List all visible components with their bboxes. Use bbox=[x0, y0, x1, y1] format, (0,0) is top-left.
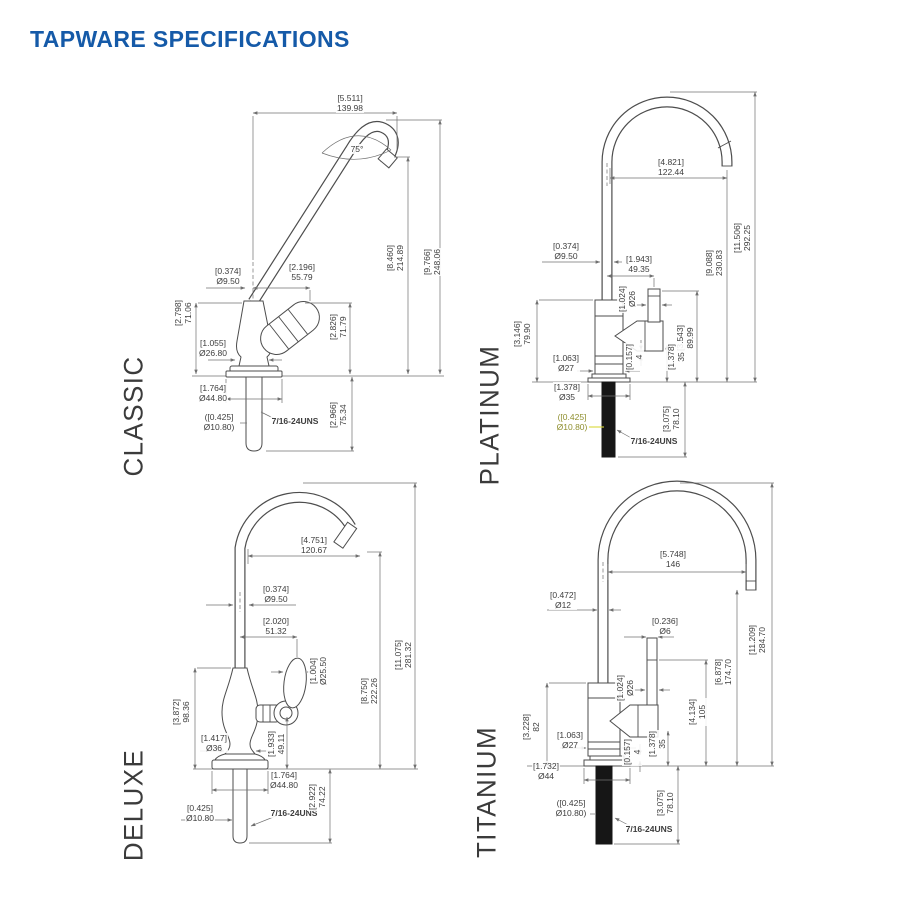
titanium-shank bbox=[596, 766, 612, 844]
dim-deluxe-overall-height: [11.075]281.32 bbox=[393, 639, 413, 671]
dim-classic-flange-od: [1.764]Ø44.80 bbox=[198, 383, 228, 403]
platinum-shank bbox=[602, 382, 615, 457]
dim-classic-shank-length: [2.966]75.34 bbox=[328, 401, 348, 429]
dim-classic-supply-od: ([0.425]Ø10.80) bbox=[203, 412, 236, 432]
dim-titanium-gap: [0.157]4 bbox=[622, 738, 642, 766]
dim-titanium-body-od: [1.063]Ø27 bbox=[556, 730, 584, 750]
dim-titanium-lever-rod-od: [0.236]Ø6 bbox=[651, 616, 679, 636]
dim-titanium-outlet-height: [6.878]174.70 bbox=[713, 658, 733, 686]
dim-deluxe-handle-height: [1.933]49.11 bbox=[266, 730, 286, 758]
dim-titanium-thread: 7/16-24UNS bbox=[625, 824, 674, 834]
dim-titanium-spout-span: [5.748]146 bbox=[659, 549, 687, 569]
dim-deluxe-spout-span: [4.751]120.67 bbox=[300, 535, 328, 555]
dim-classic-thread: 7/16-24UNS bbox=[271, 416, 320, 426]
dim-platinum-lever-od: [1.024]Ø26 bbox=[617, 285, 637, 313]
classic-shank bbox=[246, 377, 262, 451]
dim-titanium-spout-od: [0.472]Ø12 bbox=[549, 590, 577, 610]
dim-titanium-flange-od: [1.732]Ø44 bbox=[532, 761, 560, 781]
dim-deluxe-body-od: [1.417]Ø36 bbox=[200, 733, 228, 753]
dim-classic-body-od: [1.055]Ø26.80 bbox=[198, 338, 228, 358]
dim-classic-spout-angle: 75° bbox=[350, 144, 365, 154]
dim-platinum-body-od: [1.063]Ø27 bbox=[552, 353, 580, 373]
dim-platinum-gap: [0.157]4 bbox=[624, 343, 644, 371]
dim-deluxe-handle-reach: [2.020]51.32 bbox=[262, 616, 290, 636]
titanium-faucet bbox=[527, 483, 774, 844]
page-title: TAPWARE SPECIFICATIONS bbox=[30, 26, 350, 53]
dim-deluxe-shank-length: [2.922]74.22 bbox=[307, 783, 327, 811]
dim-titanium-shank-length: [3.075]78.10 bbox=[655, 789, 675, 817]
dim-titanium-supply-od: ([0.425]Ø10.80) bbox=[555, 798, 588, 818]
dim-classic-spout-span: [5.511]139.98 bbox=[336, 93, 364, 113]
dim-platinum-handle-reach: [1.943]49.35 bbox=[625, 254, 653, 274]
dim-classic-body-height: [2.798]71.06 bbox=[173, 299, 193, 327]
dim-platinum-supply-od: ([0.425]Ø10.80) bbox=[556, 412, 589, 432]
dim-platinum-spout-span: [4.821]122.44 bbox=[657, 157, 685, 177]
dim-classic-handle-reach: [2.196]55.79 bbox=[288, 262, 316, 282]
dim-platinum-body-height: [3.146]79.90 bbox=[512, 320, 532, 348]
deluxe-shank bbox=[233, 769, 247, 843]
variant-label-platinum: PLATINUM bbox=[475, 345, 506, 486]
dim-deluxe-body-height: [3.872]98.36 bbox=[171, 698, 191, 726]
dim-platinum-shank-length: [3.075]78.10 bbox=[661, 405, 681, 433]
dim-deluxe-knob-od: [1.004]Ø25.50 bbox=[308, 656, 328, 686]
variant-label-deluxe: DELUXE bbox=[119, 749, 150, 861]
dim-platinum-outlet-height: [9.088]230.83 bbox=[704, 249, 724, 277]
dim-classic-overall-height: [9.766]248.06 bbox=[422, 248, 442, 276]
dim-platinum-thread: 7/16-24UNS bbox=[630, 436, 679, 446]
dim-platinum-overall-height: [11.506]292.25 bbox=[732, 222, 752, 254]
dim-classic-outlet-height: [8.460]214.89 bbox=[385, 244, 405, 272]
variant-label-titanium: TITANIUM bbox=[472, 726, 503, 858]
dim-platinum-base-height: [1.378]35 bbox=[666, 343, 686, 371]
deluxe-handle bbox=[281, 657, 309, 709]
dim-deluxe-supply-od: [0.425]Ø10.80 bbox=[185, 803, 215, 823]
dim-deluxe-flange-od: [1.764]Ø44.80 bbox=[269, 770, 299, 790]
spec-sheet: TAPWARE SPECIFICATIONS CLASSIC PLATINUM … bbox=[0, 0, 900, 900]
dim-titanium-body-height: [3.228]82 bbox=[521, 713, 541, 741]
dim-deluxe-spout-od: [0.374]Ø9.50 bbox=[262, 584, 290, 604]
dim-titanium-base-height: [1.378]35 bbox=[647, 730, 667, 758]
dim-titanium-lever-od: [1.024]Ø26 bbox=[615, 674, 635, 702]
dim-platinum-spout-od: [0.374]Ø9.50 bbox=[552, 241, 580, 261]
dim-classic-spout-od: [0.374]Ø9.50 bbox=[214, 266, 242, 286]
dim-deluxe-outlet-height: [8.750]222.26 bbox=[359, 677, 379, 705]
variant-label-classic: CLASSIC bbox=[119, 355, 150, 476]
dim-titanium-overall-height: [11.209]284.70 bbox=[747, 624, 767, 656]
dim-platinum-flange-od: [1.378]Ø35 bbox=[553, 382, 581, 402]
dim-titanium-handle-height: [4.134]105 bbox=[687, 698, 707, 726]
dim-classic-handle-height: [2.826]71.79 bbox=[328, 313, 348, 341]
